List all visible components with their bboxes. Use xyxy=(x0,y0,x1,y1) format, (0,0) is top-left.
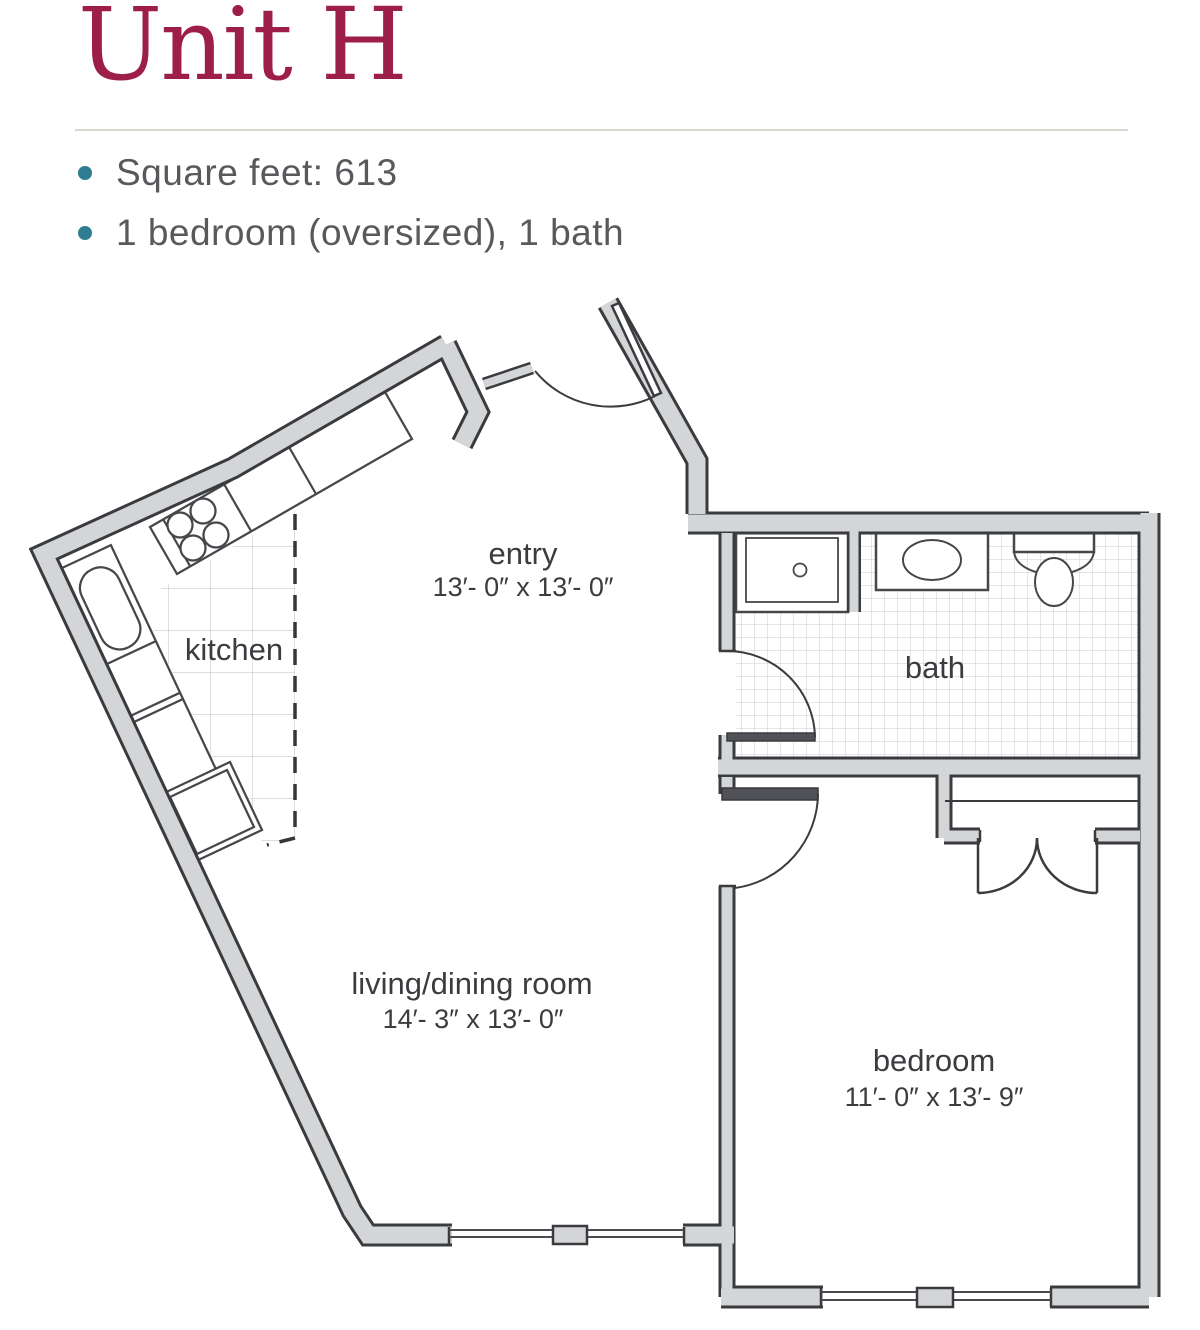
kitchen-room-label: kitchen xyxy=(185,632,283,667)
living-room-label: living/dining room xyxy=(351,966,592,1001)
closet-door-swing-arc xyxy=(978,838,1037,893)
living-room-window xyxy=(449,1226,684,1244)
bathroom-vanity-sink-icon xyxy=(876,528,988,590)
bedroom-window xyxy=(821,1288,1051,1307)
living-room-dimensions: 14′- 3″ x 13′- 0″ xyxy=(383,1004,564,1034)
closet-door-swing-arc xyxy=(1037,838,1097,893)
bedroom-door xyxy=(722,788,818,888)
closet-double-doors xyxy=(978,838,1097,893)
bath-room-label: bath xyxy=(905,650,965,685)
entry-room-dimensions: 13′- 0″ x 13′- 0″ xyxy=(433,572,614,602)
window-mullion xyxy=(917,1288,953,1307)
floorplan-drawing: entry 13′- 0″ x 13′- 0″ kitchen bath liv… xyxy=(0,0,1200,1330)
bedroom-room-label: bedroom xyxy=(873,1043,995,1078)
bedroom-room-dimensions: 11′- 0″ x 13′- 9″ xyxy=(845,1082,1024,1112)
bedroom-door-swing-arc xyxy=(735,794,818,888)
window-mullion xyxy=(553,1226,587,1244)
shower-icon xyxy=(736,528,848,612)
entry-room-label: entry xyxy=(489,536,558,571)
entry-door xyxy=(535,303,661,407)
unit-h-floorplan-page: Unit H Square feet: 613 1 bedroom (overs… xyxy=(0,0,1200,1330)
